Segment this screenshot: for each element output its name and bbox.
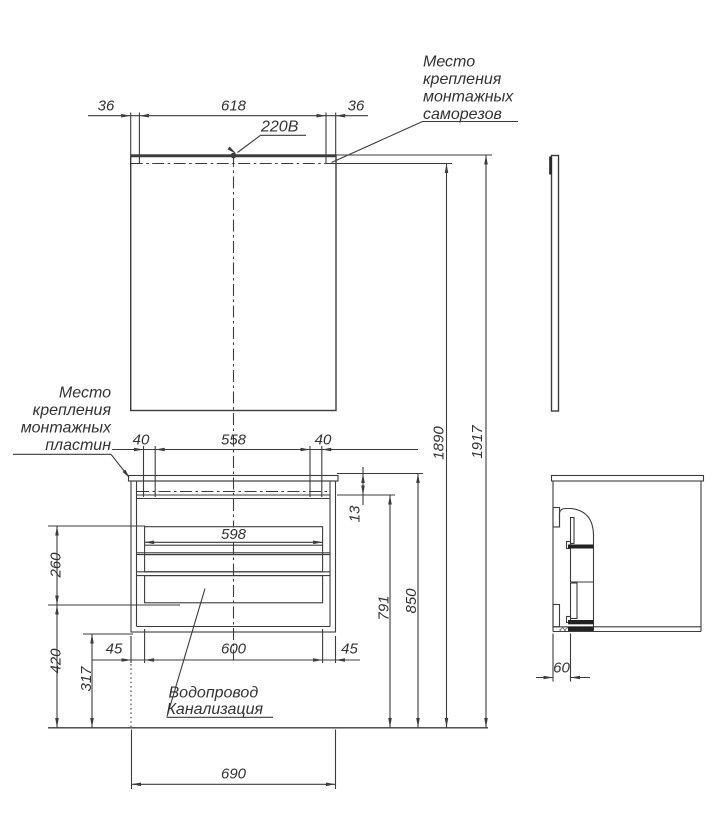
arrowhead — [544, 676, 554, 680]
mirror-side-outline — [552, 156, 559, 412]
arrowhead — [361, 486, 365, 496]
dim-791: 791 — [376, 595, 393, 620]
arrowhead — [326, 783, 336, 787]
dim-598: 598 — [221, 526, 247, 543]
power-callout: 220В — [227, 119, 306, 156]
dim-mirror-top: 36 618 36 — [88, 98, 368, 164]
arrowhead — [313, 658, 323, 662]
drawing-canvas: 36 618 36 220В Место крепления монтажных… — [0, 0, 722, 819]
dim-558: 558 — [221, 432, 247, 449]
arrowhead — [416, 718, 420, 728]
cabinet-side-view — [552, 476, 704, 632]
dims-right: 13 791 850 1890 1917 — [336, 155, 492, 728]
dim-60: 60 — [553, 660, 570, 677]
arrowhead — [55, 596, 59, 606]
note-plumbing-line2: Канализация — [167, 701, 264, 718]
mirror-side-view — [549, 156, 558, 412]
arrowhead — [484, 718, 488, 728]
dim-618: 618 — [221, 98, 247, 115]
note-plates-line4: пластин — [45, 437, 111, 454]
power-outlet-dot — [231, 153, 237, 159]
dim-overall: 690 — [132, 730, 336, 790]
note-screws-line3: монтажных — [423, 89, 514, 106]
countertop-side — [552, 476, 704, 482]
note-plates: Место крепления монтажных пластин — [13, 385, 131, 480]
note-screws-line4: саморезов — [423, 106, 502, 123]
note-plates-arrow — [123, 470, 132, 480]
dim-420: 420 — [48, 648, 65, 674]
arrowhead — [90, 634, 94, 644]
arrowhead — [313, 541, 323, 545]
dim-36-right: 36 — [348, 98, 365, 115]
dim-45-left: 45 — [106, 641, 123, 658]
dim-40-right: 40 — [315, 432, 332, 449]
mirror-front-view — [131, 153, 336, 660]
note-plumbing-line1: Водопровод — [169, 685, 259, 702]
installation-drawing: 36 618 36 220В Место крепления монтажных… — [0, 0, 722, 819]
dim-1890: 1890 — [431, 426, 448, 460]
arrowhead — [336, 658, 346, 662]
arrowhead — [122, 658, 132, 662]
dim-plates: 40 558 40 — [112, 432, 418, 498]
dim-850: 850 — [403, 588, 420, 614]
arrowhead — [484, 155, 488, 165]
drawer-back-panel — [571, 518, 575, 544]
arrowhead — [388, 718, 392, 728]
arrowhead — [155, 448, 165, 452]
arrowhead — [132, 783, 142, 787]
arrowhead — [121, 114, 131, 118]
power-label: 220В — [260, 119, 299, 136]
arrowhead — [139, 114, 149, 118]
arrowhead — [416, 474, 420, 484]
arrowhead — [571, 676, 581, 680]
note-plates-line3: монтажных — [21, 420, 112, 437]
arrowhead — [145, 541, 155, 545]
arrowhead — [317, 114, 327, 118]
note-screws-leader — [332, 122, 423, 163]
arrowhead — [55, 526, 59, 536]
mirror-bracket — [549, 157, 551, 175]
dim-45-right: 45 — [341, 641, 358, 658]
arrowhead — [445, 718, 449, 728]
side-wall-section-bottom — [553, 605, 560, 627]
arrowhead — [90, 718, 94, 728]
dim-side-depth: 60 — [536, 634, 590, 682]
note-plates-line1: Место — [59, 385, 111, 402]
side-wall-section-top — [553, 508, 560, 528]
note-plates-line2: крепления — [33, 402, 112, 419]
arrowhead — [388, 495, 392, 505]
note-plumbing: Водопровод Канализация — [167, 589, 274, 719]
arrowhead — [301, 448, 311, 452]
arrowhead — [55, 718, 59, 728]
dim-1917: 1917 — [469, 425, 486, 459]
dim-600: 600 — [221, 641, 247, 658]
dim-690: 690 — [221, 766, 247, 783]
dim-317: 317 — [78, 666, 95, 692]
note-screws-line1: Место — [423, 54, 475, 71]
drawer-section-column — [571, 583, 578, 619]
dim-13: 13 — [347, 505, 364, 522]
arrowhead — [145, 658, 155, 662]
arrowhead — [55, 605, 59, 615]
note-screws-line2: крепления — [423, 71, 502, 88]
bottom-rail-bar — [568, 627, 594, 631]
dim-40-left: 40 — [133, 432, 150, 449]
arrowhead — [336, 114, 346, 118]
drawer-slide-bottom — [568, 620, 594, 624]
drawer-slide-top — [568, 545, 594, 549]
dim-36-left: 36 — [98, 98, 115, 115]
arrowhead — [361, 474, 365, 484]
arrowhead — [445, 164, 449, 174]
dim-260: 260 — [48, 552, 65, 579]
